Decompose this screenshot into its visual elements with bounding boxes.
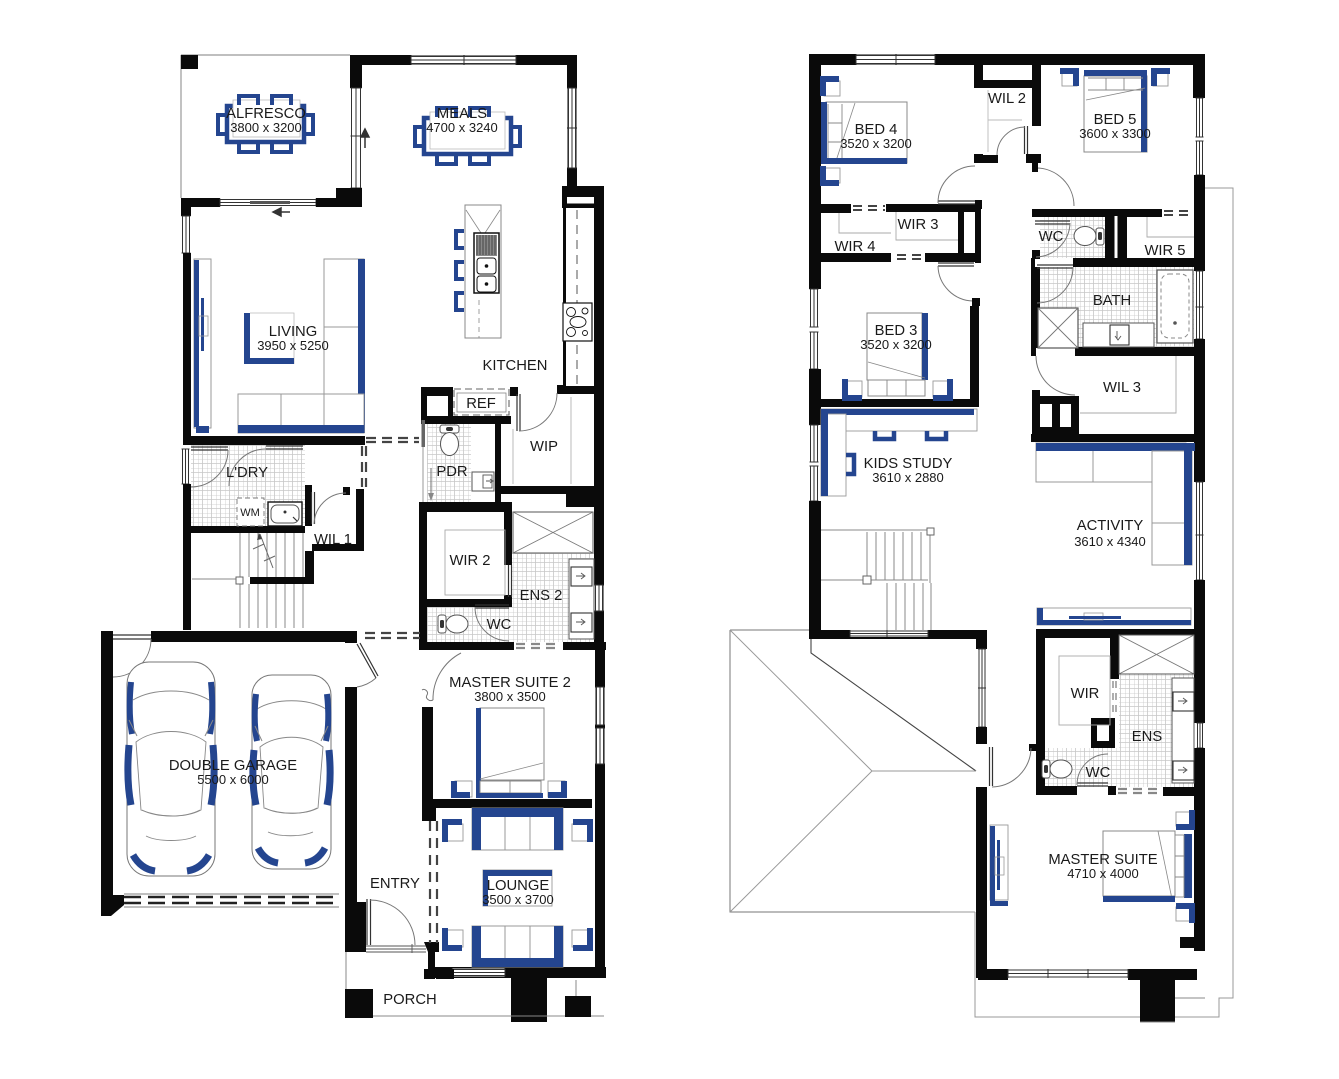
svg-text:WIR 5: WIR 5 bbox=[1144, 243, 1185, 259]
svg-text:5500 x 6000: 5500 x 6000 bbox=[197, 772, 269, 787]
svg-text:WIL 3: WIL 3 bbox=[1103, 380, 1141, 396]
svg-text:4700 x 3240: 4700 x 3240 bbox=[426, 120, 498, 135]
svg-text:WIR 3: WIR 3 bbox=[897, 217, 938, 233]
svg-text:REF: REF bbox=[466, 396, 496, 412]
svg-text:L'DRY: L'DRY bbox=[226, 465, 268, 481]
svg-text:WIP: WIP bbox=[530, 439, 558, 455]
svg-text:PORCH: PORCH bbox=[383, 992, 436, 1008]
svg-text:3800 x 3500: 3800 x 3500 bbox=[474, 689, 546, 704]
svg-text:WM: WM bbox=[240, 507, 260, 519]
svg-text:3950 x 5250: 3950 x 5250 bbox=[257, 338, 329, 353]
svg-text:3800 x 3200: 3800 x 3200 bbox=[230, 120, 302, 135]
svg-text:4710 x 4000: 4710 x 4000 bbox=[1067, 866, 1139, 881]
svg-text:3520 x 3200: 3520 x 3200 bbox=[860, 337, 932, 352]
svg-text:3610 x 4340: 3610 x 4340 bbox=[1074, 534, 1146, 549]
svg-text:ENS 2: ENS 2 bbox=[520, 588, 563, 604]
svg-text:ACTIVITY: ACTIVITY bbox=[1077, 518, 1144, 534]
svg-text:WIR 2: WIR 2 bbox=[449, 553, 490, 569]
svg-text:WIR: WIR bbox=[1071, 686, 1100, 702]
svg-text:KITCHEN: KITCHEN bbox=[483, 358, 548, 374]
svg-text:WIL 2: WIL 2 bbox=[988, 91, 1026, 107]
svg-text:WIL 1: WIL 1 bbox=[314, 532, 352, 548]
svg-text:3500 x 3700: 3500 x 3700 bbox=[482, 892, 554, 907]
svg-text:WIR 4: WIR 4 bbox=[834, 239, 875, 255]
svg-text:PDR: PDR bbox=[436, 464, 467, 480]
svg-text:WC: WC bbox=[487, 617, 512, 633]
svg-text:3600 x 3300: 3600 x 3300 bbox=[1079, 126, 1151, 141]
svg-text:WC: WC bbox=[1039, 229, 1064, 245]
svg-text:BATH: BATH bbox=[1093, 293, 1131, 309]
svg-text:3610 x 2880: 3610 x 2880 bbox=[872, 470, 944, 485]
svg-text:WC: WC bbox=[1086, 765, 1111, 781]
svg-text:3520 x 3200: 3520 x 3200 bbox=[840, 136, 912, 151]
svg-text:ENTRY: ENTRY bbox=[370, 876, 420, 892]
svg-text:ENS: ENS bbox=[1132, 729, 1163, 745]
